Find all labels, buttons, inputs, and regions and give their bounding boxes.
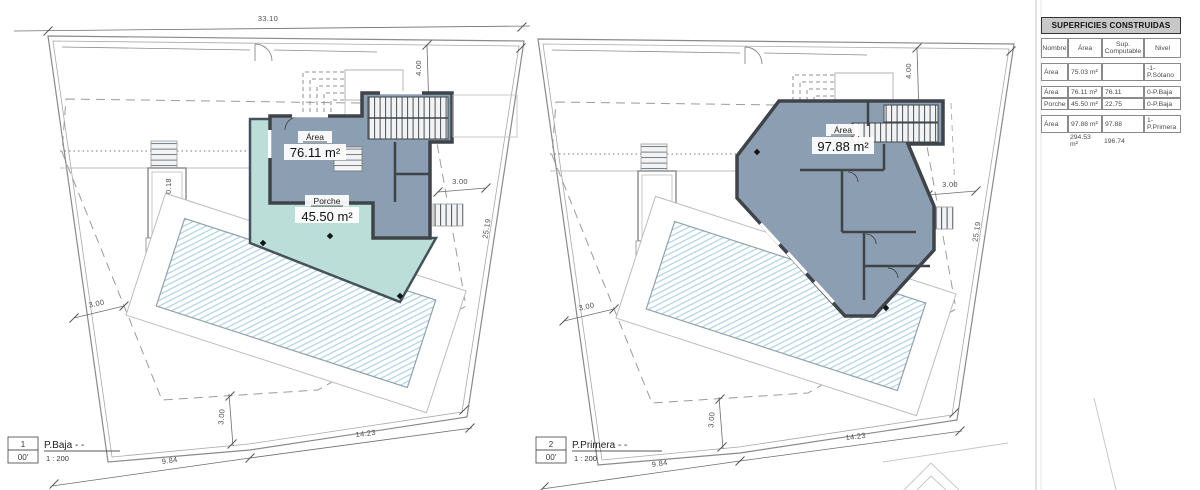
roof-outline: [453, 95, 517, 137]
dim-text: 3.00: [216, 409, 226, 426]
cell-area: 45.50 m²: [1068, 98, 1102, 110]
site-plans-svg: 33.10 Área 76.11 m²: [0, 0, 1200, 490]
drawing-sheet: 33.10 Área 76.11 m²: [0, 0, 1200, 490]
table-totals-row: 294.53 m² 196.74: [1041, 133, 1181, 149]
dim-text: 0.18: [164, 178, 173, 194]
dim-text: 4.00: [904, 63, 913, 79]
dim-text: 14.23: [845, 431, 866, 442]
plan-number: 2: [549, 440, 554, 449]
col-nivel: Nivel: [1144, 38, 1181, 58]
staircase: [368, 97, 448, 139]
cell-nombre: Porche: [1041, 98, 1068, 110]
table-row: Área 76.11 m² 76.11 0-P.Baja: [1041, 86, 1181, 98]
table-row: Área 75.03 m² -1-P.Sótano: [1041, 63, 1181, 81]
cell-computable: 97.88: [1102, 115, 1144, 133]
plan-primera: Área 97.88 m² 4.00 3.00 25.19 3.00 3.00 …: [536, 39, 1016, 490]
dim-text: 9.84: [651, 458, 668, 469]
total-area: 294.53 m²: [1068, 133, 1102, 149]
plan-number: 1: [21, 440, 26, 449]
dim-text: 9.84: [161, 455, 178, 466]
cell-nivel: 0-P.Baja: [1144, 98, 1181, 110]
table-row: Área 97.88 m² 97.88 1-P.Primera: [1041, 115, 1181, 133]
plan-scale: 1 : 200: [46, 454, 69, 463]
dim-text: 14.23: [355, 428, 376, 439]
dim-text: 33.10: [258, 14, 278, 23]
cell-area: 97.88 m²: [1068, 115, 1102, 133]
plan-title: P.Baja - -: [44, 440, 84, 451]
title-block-primera: 2 00' P.Primera - - 1 : 200: [536, 437, 662, 463]
areas-table-title: SUPERFICIES CONSTRUIDAS: [1041, 17, 1181, 34]
dim-text: 3.00: [706, 412, 716, 429]
setback-dash: [951, 103, 955, 190]
porch-value: 45.50 m²: [301, 209, 353, 224]
dim-text: 3.00: [942, 180, 958, 189]
cell-nivel: 1-P.Primera: [1144, 115, 1181, 133]
plan-title: P.Primera - -: [572, 440, 627, 451]
cell-computable: 22.75: [1102, 98, 1144, 110]
cell-area: 75.03 m²: [1068, 63, 1102, 81]
area-value: 97.88 m²: [817, 139, 869, 154]
dim-text: 3.00: [88, 298, 105, 310]
cell-nombre: Área: [1041, 86, 1068, 98]
dim-text: 25.19: [970, 221, 982, 242]
area-title: Área: [306, 132, 324, 142]
plan-level-code: 00': [18, 453, 29, 462]
dim-text: 4.00: [414, 60, 423, 76]
plan-scale: 1 : 200: [574, 454, 597, 463]
cell-computable: [1102, 63, 1144, 81]
dim-text: 3.00: [452, 177, 468, 186]
table-row: Porche 45.50 m² 22.75 0-P.Baja: [1041, 98, 1181, 110]
col-nombre: Nombre: [1041, 38, 1068, 58]
plan-baja: 33.10 Área 76.11 m²: [8, 14, 530, 489]
dim-text: 25.19: [480, 218, 492, 239]
cell-nombre: Área: [1041, 115, 1068, 133]
col-area: Área: [1068, 38, 1102, 58]
cell-computable: 76.11: [1102, 86, 1144, 98]
dim-text: 3.00: [578, 301, 595, 313]
cell-nivel: 0-P.Baja: [1144, 86, 1181, 98]
porch-title: Porche: [314, 196, 341, 206]
plan-level-code: 00': [546, 453, 557, 462]
dim-width-top: 33.10: [14, 14, 530, 36]
cell-nivel: -1-P.Sótano: [1144, 63, 1181, 81]
area-title: Área: [834, 125, 852, 135]
areas-table-panel: SUPERFICIES CONSTRUIDAS Nombre Área Sup.…: [1041, 17, 1181, 149]
col-computable: Sup. Computable: [1102, 38, 1144, 58]
area-value: 76.11 m²: [290, 145, 341, 160]
cell-area: 76.11 m²: [1068, 86, 1102, 98]
site-plot: [48, 36, 526, 489]
title-block-baja: 1 00' P.Baja - - 1 : 200: [8, 437, 120, 463]
areas-table-header: Nombre Área Sup. Computable Nivel: [1041, 38, 1181, 58]
cell-nombre: Área: [1041, 63, 1068, 81]
total-computable: 196.74: [1102, 133, 1144, 149]
